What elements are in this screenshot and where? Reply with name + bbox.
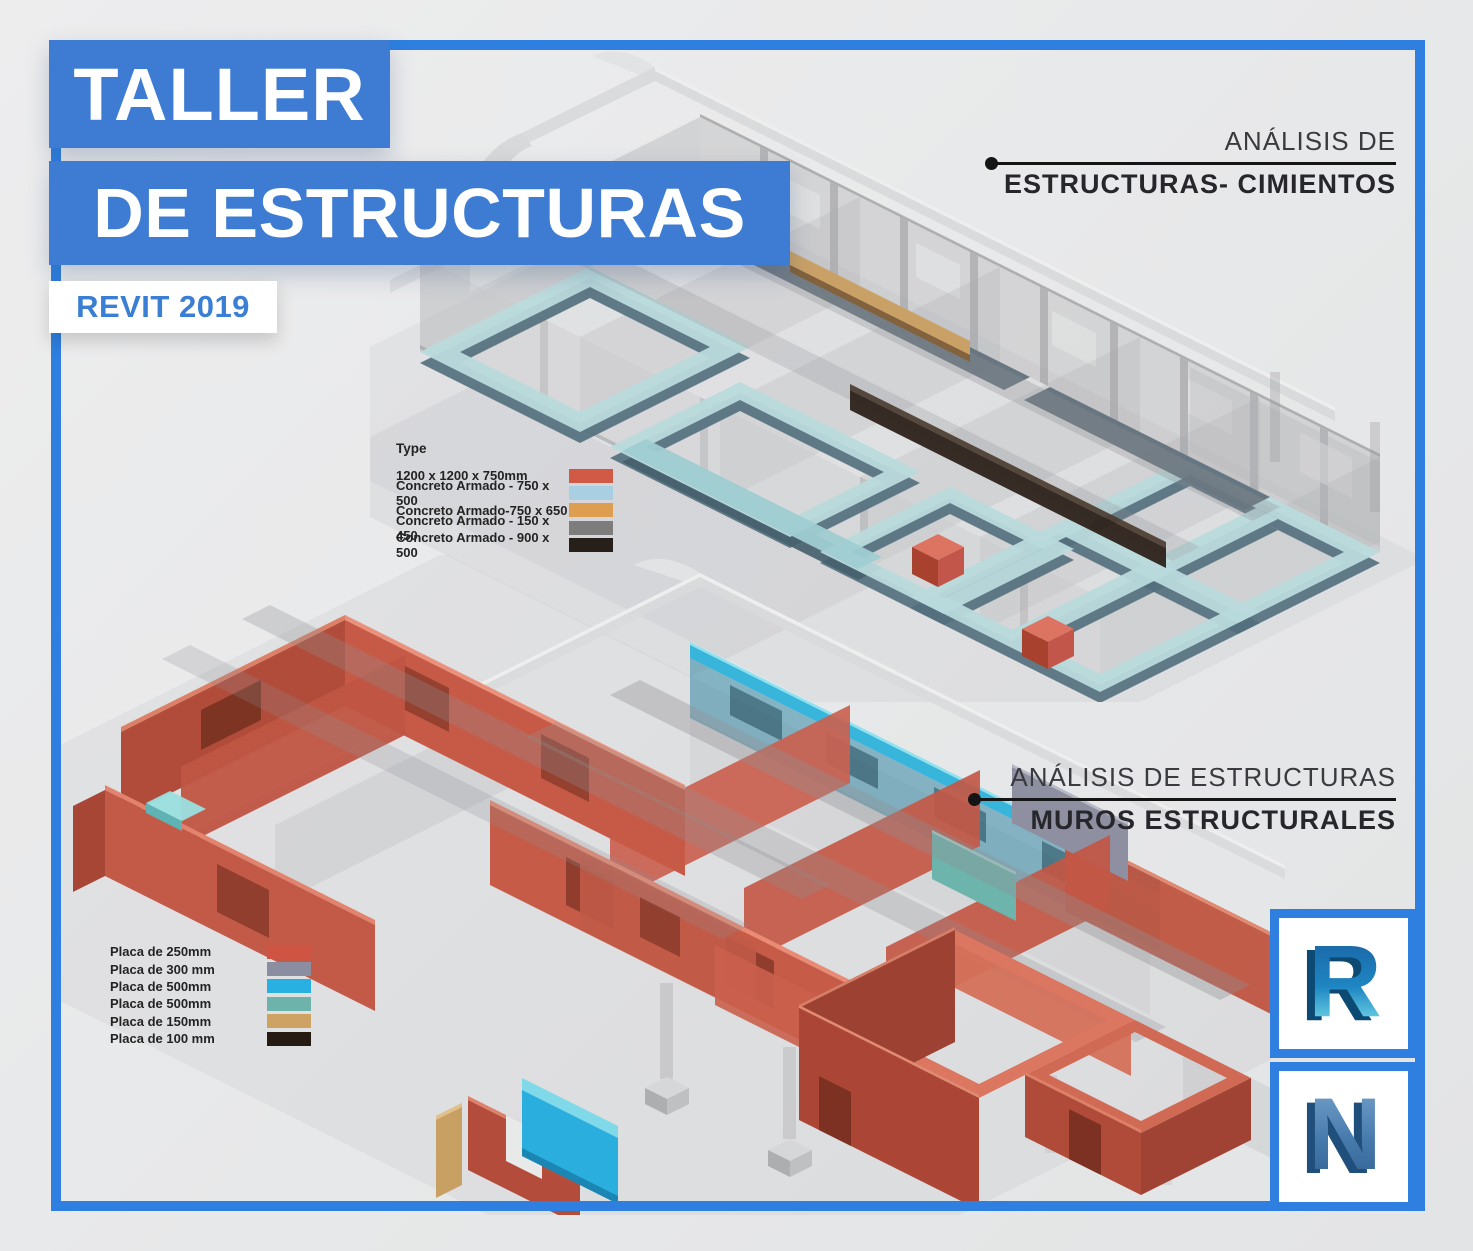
legend-label: Placa de 250mm — [110, 944, 267, 959]
annotation-muros-line2: MUROS ESTRUCTURALES — [1030, 805, 1396, 836]
legend-swatch — [267, 962, 311, 976]
legend-swatch — [569, 521, 613, 535]
legend-label: Concreto Armado - 900 x 500 — [396, 530, 569, 560]
legend-cimientos: Type 1200 x 1200 x 750mm Concreto Armado… — [396, 441, 613, 554]
legend-swatch — [569, 486, 613, 500]
legend-row: Placa de 100 mm — [110, 1030, 311, 1047]
revit-logo: R R — [1270, 909, 1417, 1058]
navisworks-logo-icon: N N — [1279, 1071, 1408, 1202]
page-title-line2: DE ESTRUCTURAS — [93, 173, 746, 253]
legend-swatch — [569, 469, 613, 483]
legend-row: Concreto Armado - 750 x 500 — [396, 484, 613, 501]
legend-row: Placa de 500mm — [110, 995, 311, 1012]
legend-label: Placa de 500mm — [110, 979, 267, 994]
legend-swatch — [267, 1032, 311, 1046]
navisworks-logo: N N — [1270, 1062, 1417, 1211]
legend-swatch — [267, 1014, 311, 1028]
revit-logo-icon: R R — [1279, 918, 1408, 1049]
legend-swatch — [569, 538, 613, 552]
legend-row: Placa de 150mm — [110, 1013, 311, 1030]
legend-label: Placa de 500mm — [110, 996, 267, 1011]
legend-title: Type — [396, 441, 613, 456]
revit-logo-letter: R — [1308, 924, 1382, 1038]
legend-row: Placa de 500mm — [110, 978, 311, 995]
title-box-line1: TALLER — [49, 40, 390, 148]
revit-version-label: REVIT 2019 — [76, 289, 250, 325]
annotation-dot-icon — [968, 793, 981, 806]
poster: { "header": { "title_line1": "TALLER", "… — [0, 0, 1473, 1251]
annotation-cimientos: ANÁLISIS DE ESTRUCTURAS- CIMIENTOS — [991, 126, 1396, 200]
annotation-muros: ANÁLISIS DE ESTRUCTURAS MUROS ESTRUCTURA… — [974, 762, 1396, 836]
annotation-muros-line1: ANÁLISIS DE ESTRUCTURAS — [1010, 762, 1396, 793]
legend-row: Concreto Armado - 900 x 500 — [396, 537, 613, 554]
legend-row: Placa de 250mm — [110, 943, 311, 960]
model-muros-render — [60, 555, 1290, 1215]
legend-label: Placa de 150mm — [110, 1014, 267, 1029]
legend-swatch — [569, 503, 613, 517]
annotation-cimientos-line2: ESTRUCTURAS- CIMIENTOS — [1004, 169, 1396, 200]
page-title-line1: TALLER — [73, 52, 365, 137]
annotation-dot-icon — [985, 157, 998, 170]
legend-swatch — [267, 945, 311, 959]
legend-row: Placa de 300 mm — [110, 960, 311, 977]
navisworks-logo-letter: N — [1308, 1077, 1382, 1191]
annotation-rule — [991, 162, 1396, 165]
legend-label: Placa de 100 mm — [110, 1031, 267, 1046]
annotation-rule — [974, 798, 1396, 801]
legend-label: Placa de 300 mm — [110, 962, 267, 977]
legend-muros: Placa de 250mm Placa de 300 mm Placa de … — [110, 943, 311, 1047]
legend-swatch — [267, 979, 311, 993]
legend-swatch — [267, 997, 311, 1011]
revit-version-badge: REVIT 2019 — [49, 281, 277, 333]
annotation-cimientos-line1: ANÁLISIS DE — [1225, 126, 1396, 157]
tan-wall — [436, 1103, 462, 1198]
title-box-line2: DE ESTRUCTURAS — [49, 161, 790, 265]
